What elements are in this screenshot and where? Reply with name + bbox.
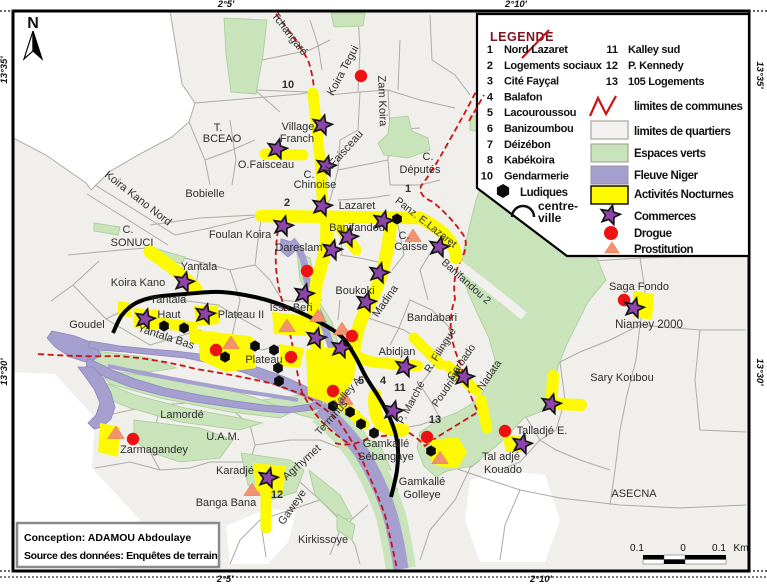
svg-text:ville: ville (538, 211, 562, 225)
svg-text:2°10': 2°10' (529, 574, 553, 585)
svg-text:O.Faisceau: O.Faisceau (238, 159, 294, 171)
svg-text:5: 5 (358, 375, 364, 387)
svg-text:Abidjan: Abidjan (379, 346, 416, 358)
svg-text:ASECNA: ASECNA (611, 488, 657, 500)
svg-text:13°30': 13°30' (754, 358, 765, 386)
svg-text:Bobielle: Bobielle (185, 188, 224, 200)
svg-text:Conception: ADAMOU Abdoulaye: Conception: ADAMOU Abdoulaye (24, 532, 191, 544)
svg-text:0: 0 (680, 543, 686, 554)
svg-text:Zam Koira: Zam Koira (375, 75, 389, 127)
svg-text:13°35': 13°35' (0, 56, 10, 84)
svg-text:Golleye: Golleye (403, 489, 440, 501)
svg-text:Kalley sud: Kalley sud (628, 44, 680, 56)
svg-text:1: 1 (405, 183, 411, 195)
svg-text:10: 10 (481, 170, 493, 182)
svg-text:13: 13 (606, 76, 618, 88)
svg-text:Sébangaye: Sébangaye (358, 451, 414, 463)
svg-text:Issa Beri: Issa Beri (270, 302, 313, 314)
svg-text:5: 5 (487, 107, 493, 119)
svg-text:Prostitution: Prostitution (634, 244, 694, 256)
svg-text:13°30': 13°30' (0, 358, 10, 386)
svg-text:Lazaret: Lazaret (339, 200, 376, 212)
svg-text:Banifandou: Banifandou (329, 222, 385, 234)
svg-text:Niamey 2000: Niamey 2000 (615, 319, 683, 331)
svg-text:2°5': 2°5' (217, 0, 235, 10)
svg-text:Balafon: Balafon (504, 91, 543, 103)
svg-text:Chinoise: Chinoise (294, 179, 337, 191)
svg-text:Activités Nocturnes: Activités Nocturnes (634, 189, 734, 201)
svg-text:8: 8 (487, 155, 493, 167)
svg-text:Lacouroussou: Lacouroussou (504, 107, 576, 119)
svg-text:P. Kennedy: P. Kennedy (628, 60, 685, 72)
svg-text:limites de communes: limites de communes (634, 101, 742, 113)
svg-text:2: 2 (284, 197, 290, 209)
svg-text:2°5': 2°5' (216, 574, 234, 585)
svg-text:Nord Lazaret: Nord Lazaret (504, 44, 568, 56)
svg-text:limites de quartiers: limites de quartiers (634, 126, 731, 138)
svg-text:6: 6 (487, 123, 493, 135)
svg-text:Kirkissoye: Kirkissoye (298, 534, 348, 546)
svg-text:105 Logements: 105 Logements (628, 76, 704, 88)
svg-text:7: 7 (487, 139, 493, 151)
svg-text:Haut: Haut (157, 309, 180, 321)
svg-text:Goudel: Goudel (69, 319, 104, 331)
svg-text:Km: Km (734, 543, 749, 554)
svg-text:Source des données: Enquêtes d: Source des données: Enquêtes de terrain (24, 550, 218, 562)
svg-text:Plateau: Plateau (245, 354, 282, 366)
svg-text:13: 13 (429, 414, 441, 426)
svg-text:2: 2 (487, 60, 493, 72)
svg-text:12: 12 (606, 60, 618, 72)
svg-text:Kouado: Kouado (484, 464, 522, 476)
svg-text:Sary Koubou: Sary Koubou (590, 372, 654, 384)
svg-text:Bandabari: Bandabari (407, 312, 457, 324)
svg-text:Village: Village (282, 121, 315, 133)
svg-text:12: 12 (271, 489, 283, 501)
svg-text:Foulan Koira: Foulan Koira (209, 229, 272, 241)
svg-text:Logements sociaux: Logements sociaux (504, 60, 603, 72)
svg-text:C.: C. (123, 224, 134, 236)
svg-text:Boukoki: Boukoki (335, 285, 374, 297)
svg-text:Tal adjé: Tal adjé (482, 451, 520, 463)
svg-text:N: N (27, 15, 39, 32)
svg-text:Fleuve Niger: Fleuve Niger (634, 170, 699, 182)
svg-text:Talladjé E.: Talladjé E. (517, 425, 568, 437)
svg-text:BCEAO: BCEAO (203, 133, 242, 145)
svg-text:Zarmagandey: Zarmagandey (120, 444, 188, 456)
svg-text:10: 10 (282, 79, 294, 91)
svg-text:C.: C. (423, 151, 434, 163)
svg-text:Caisse: Caisse (394, 241, 428, 253)
svg-text:11: 11 (606, 44, 618, 56)
svg-text:Ludiques: Ludiques (520, 187, 568, 199)
svg-text:11: 11 (394, 382, 406, 394)
svg-text:SONUCI: SONUCI (111, 237, 154, 249)
svg-text:4: 4 (380, 375, 387, 387)
svg-text:13°35': 13°35' (754, 61, 765, 89)
svg-text:Espaces verts: Espaces verts (634, 148, 706, 160)
svg-text:Lamordé: Lamordé (160, 409, 203, 421)
svg-text:Franch: Franch (280, 133, 314, 145)
svg-text:Saga Fondo: Saga Fondo (609, 281, 669, 293)
svg-text:0.1: 0.1 (712, 543, 726, 554)
svg-text:1: 1 (487, 44, 493, 56)
svg-text:LEGENDE: LEGENDE (490, 30, 554, 44)
svg-text:Gendarmerie: Gendarmerie (504, 170, 569, 182)
svg-text:Députés: Députés (400, 164, 441, 176)
svg-text:Karadjé: Karadjé (216, 465, 254, 477)
svg-text:Kabékoira: Kabékoira (504, 155, 556, 167)
svg-text:Yantala: Yantala (150, 294, 187, 306)
svg-text:Cité Fayçal: Cité Fayçal (504, 76, 559, 88)
svg-text:U.A.M.: U.A.M. (206, 431, 240, 443)
svg-text:Banizoumbou: Banizoumbou (504, 123, 573, 135)
svg-text:2°10': 2°10' (504, 0, 528, 10)
svg-text:0.1: 0.1 (630, 543, 644, 554)
svg-text:Drogue: Drogue (634, 228, 672, 240)
svg-text:Yantala: Yantala (181, 261, 218, 273)
svg-text:Banga Bana: Banga Bana (196, 497, 257, 509)
svg-text:Gamkallé: Gamkallé (399, 476, 445, 488)
svg-text:Plateau II: Plateau II (218, 309, 264, 321)
svg-text:Gamkallé: Gamkallé (363, 438, 409, 450)
svg-text:Commerces: Commerces (634, 211, 696, 223)
svg-text:3: 3 (487, 76, 493, 88)
svg-text:Déizébon: Déizébon (504, 139, 551, 151)
svg-text:Dareslam: Dareslam (275, 242, 322, 254)
svg-text:4: 4 (487, 91, 494, 103)
svg-text:Koira Kano: Koira Kano (111, 277, 165, 289)
